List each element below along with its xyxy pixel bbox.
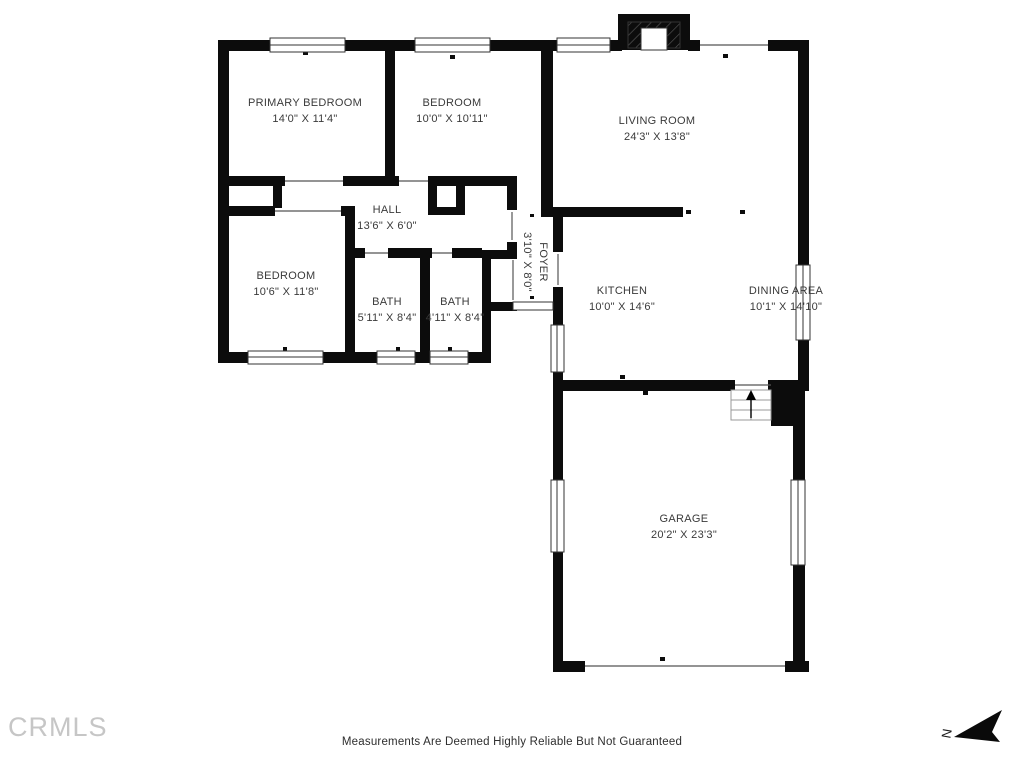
room-label-living-room: LIVING ROOM 24'3" X 13'8" xyxy=(619,114,696,146)
room-label-hall: HALL 13'6" X 6'0" xyxy=(357,203,417,235)
fireplace xyxy=(618,14,690,50)
room-name: BATH xyxy=(426,295,485,311)
room-dimensions: 14'0" X 11'4" xyxy=(248,112,362,128)
floorplan-page: PRIMARY BEDROOM 14'0" X 11'4" BEDROOM 10… xyxy=(0,0,1024,768)
room-name: GARAGE xyxy=(651,512,717,528)
room-dimensions: 10'0" X 10'11" xyxy=(416,112,488,128)
room-dimensions: 24'3" X 13'8" xyxy=(619,130,696,146)
room-name: PRIMARY BEDROOM xyxy=(248,96,362,112)
room-dimensions: 10'1" X 14'10" xyxy=(749,300,823,316)
room-dimensions: 5'11" X 8'4" xyxy=(358,311,417,327)
room-label-kitchen: KITCHEN 10'0" X 14'6" xyxy=(589,284,655,316)
floorplan-drawing xyxy=(0,0,1024,768)
room-label-primary-bedroom: PRIMARY BEDROOM 14'0" X 11'4" xyxy=(248,96,362,128)
room-name: LIVING ROOM xyxy=(619,114,696,130)
room-name: BEDROOM xyxy=(253,269,318,285)
front-door xyxy=(513,302,553,310)
north-arrow-glyph xyxy=(924,702,1010,754)
room-dimensions: 20'2" X 23'3" xyxy=(651,528,717,544)
room-name: BATH xyxy=(358,295,417,311)
room-label-bedroom-2: BEDROOM 10'0" X 10'11" xyxy=(416,96,488,128)
room-label-bath-1: BATH 5'11" X 8'4" xyxy=(358,295,417,327)
room-label-garage: GARAGE 20'2" X 23'3" xyxy=(651,512,717,544)
room-dimensions: 10'0" X 14'6" xyxy=(589,300,655,316)
room-label-foyer: FOYER 3'10" X 8'0" xyxy=(518,232,550,292)
room-name: HALL xyxy=(357,203,417,219)
north-arrow-icon: N xyxy=(924,702,1010,754)
room-label-bath-2: BATH 4'11" X 8'4" xyxy=(426,295,485,327)
room-label-dining-area: DINING AREA 10'1" X 14'10" xyxy=(749,284,823,316)
room-dimensions: 3'10" X 8'0" xyxy=(518,232,534,292)
room-name: KITCHEN xyxy=(589,284,655,300)
measurement-disclaimer: Measurements Are Deemed Highly Reliable … xyxy=(0,736,1024,748)
room-label-bedroom-3: BEDROOM 10'6" X 11'8" xyxy=(253,269,318,301)
room-name: BEDROOM xyxy=(416,96,488,112)
room-name: DINING AREA xyxy=(749,284,823,300)
room-dimensions: 13'6" X 6'0" xyxy=(357,219,417,235)
room-name: FOYER xyxy=(534,232,550,292)
room-dimensions: 4'11" X 8'4" xyxy=(426,311,485,327)
room-dimensions: 10'6" X 11'8" xyxy=(253,285,318,301)
stairs xyxy=(731,390,771,420)
